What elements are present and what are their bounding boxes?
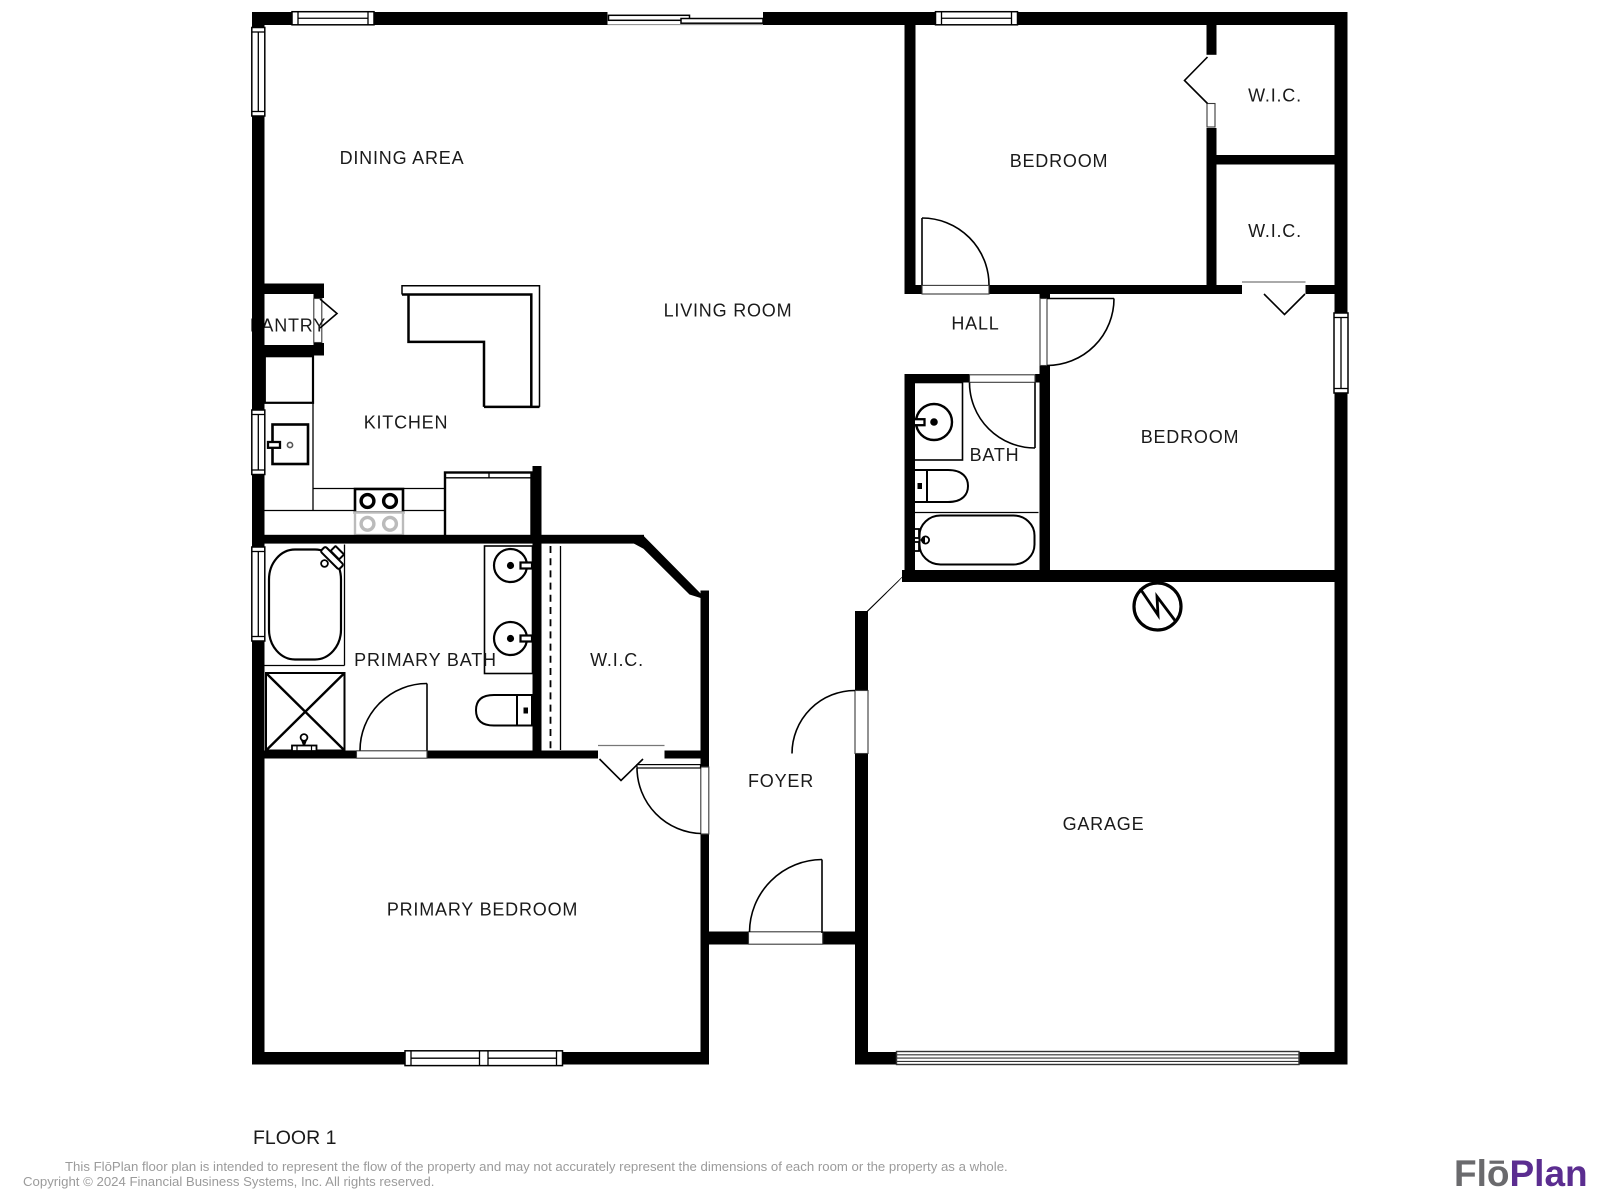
svg-text:PRIMARY BATH: PRIMARY BATH: [354, 650, 497, 670]
svg-text:Copyright © 2024 Financial Bus: Copyright © 2024 Financial Business Syst…: [23, 1174, 434, 1189]
svg-text:HALL: HALL: [951, 314, 999, 334]
svg-text:BATH: BATH: [970, 445, 1020, 465]
svg-text:FloPlan: FloPlan: [1454, 1153, 1588, 1194]
svg-text:FOYER: FOYER: [748, 771, 814, 791]
svg-text:LIVING ROOM: LIVING ROOM: [664, 301, 793, 321]
svg-text:W.I.C.: W.I.C.: [1248, 86, 1302, 106]
svg-text:W.I.C.: W.I.C.: [1248, 221, 1302, 241]
svg-text:DINING AREA: DINING AREA: [340, 148, 465, 168]
svg-text:W.I.C.: W.I.C.: [590, 650, 644, 670]
svg-text:BEDROOM: BEDROOM: [1010, 151, 1109, 171]
svg-text:FLOOR 1: FLOOR 1: [253, 1127, 336, 1149]
svg-text:GARAGE: GARAGE: [1063, 814, 1145, 834]
svg-text:BEDROOM: BEDROOM: [1141, 427, 1240, 447]
svg-text:KITCHEN: KITCHEN: [364, 413, 449, 433]
svg-text:PRIMARY BEDROOM: PRIMARY BEDROOM: [387, 900, 578, 920]
svg-text:This FlōPlan floor plan is int: This FlōPlan floor plan is intended to r…: [65, 1159, 1008, 1174]
